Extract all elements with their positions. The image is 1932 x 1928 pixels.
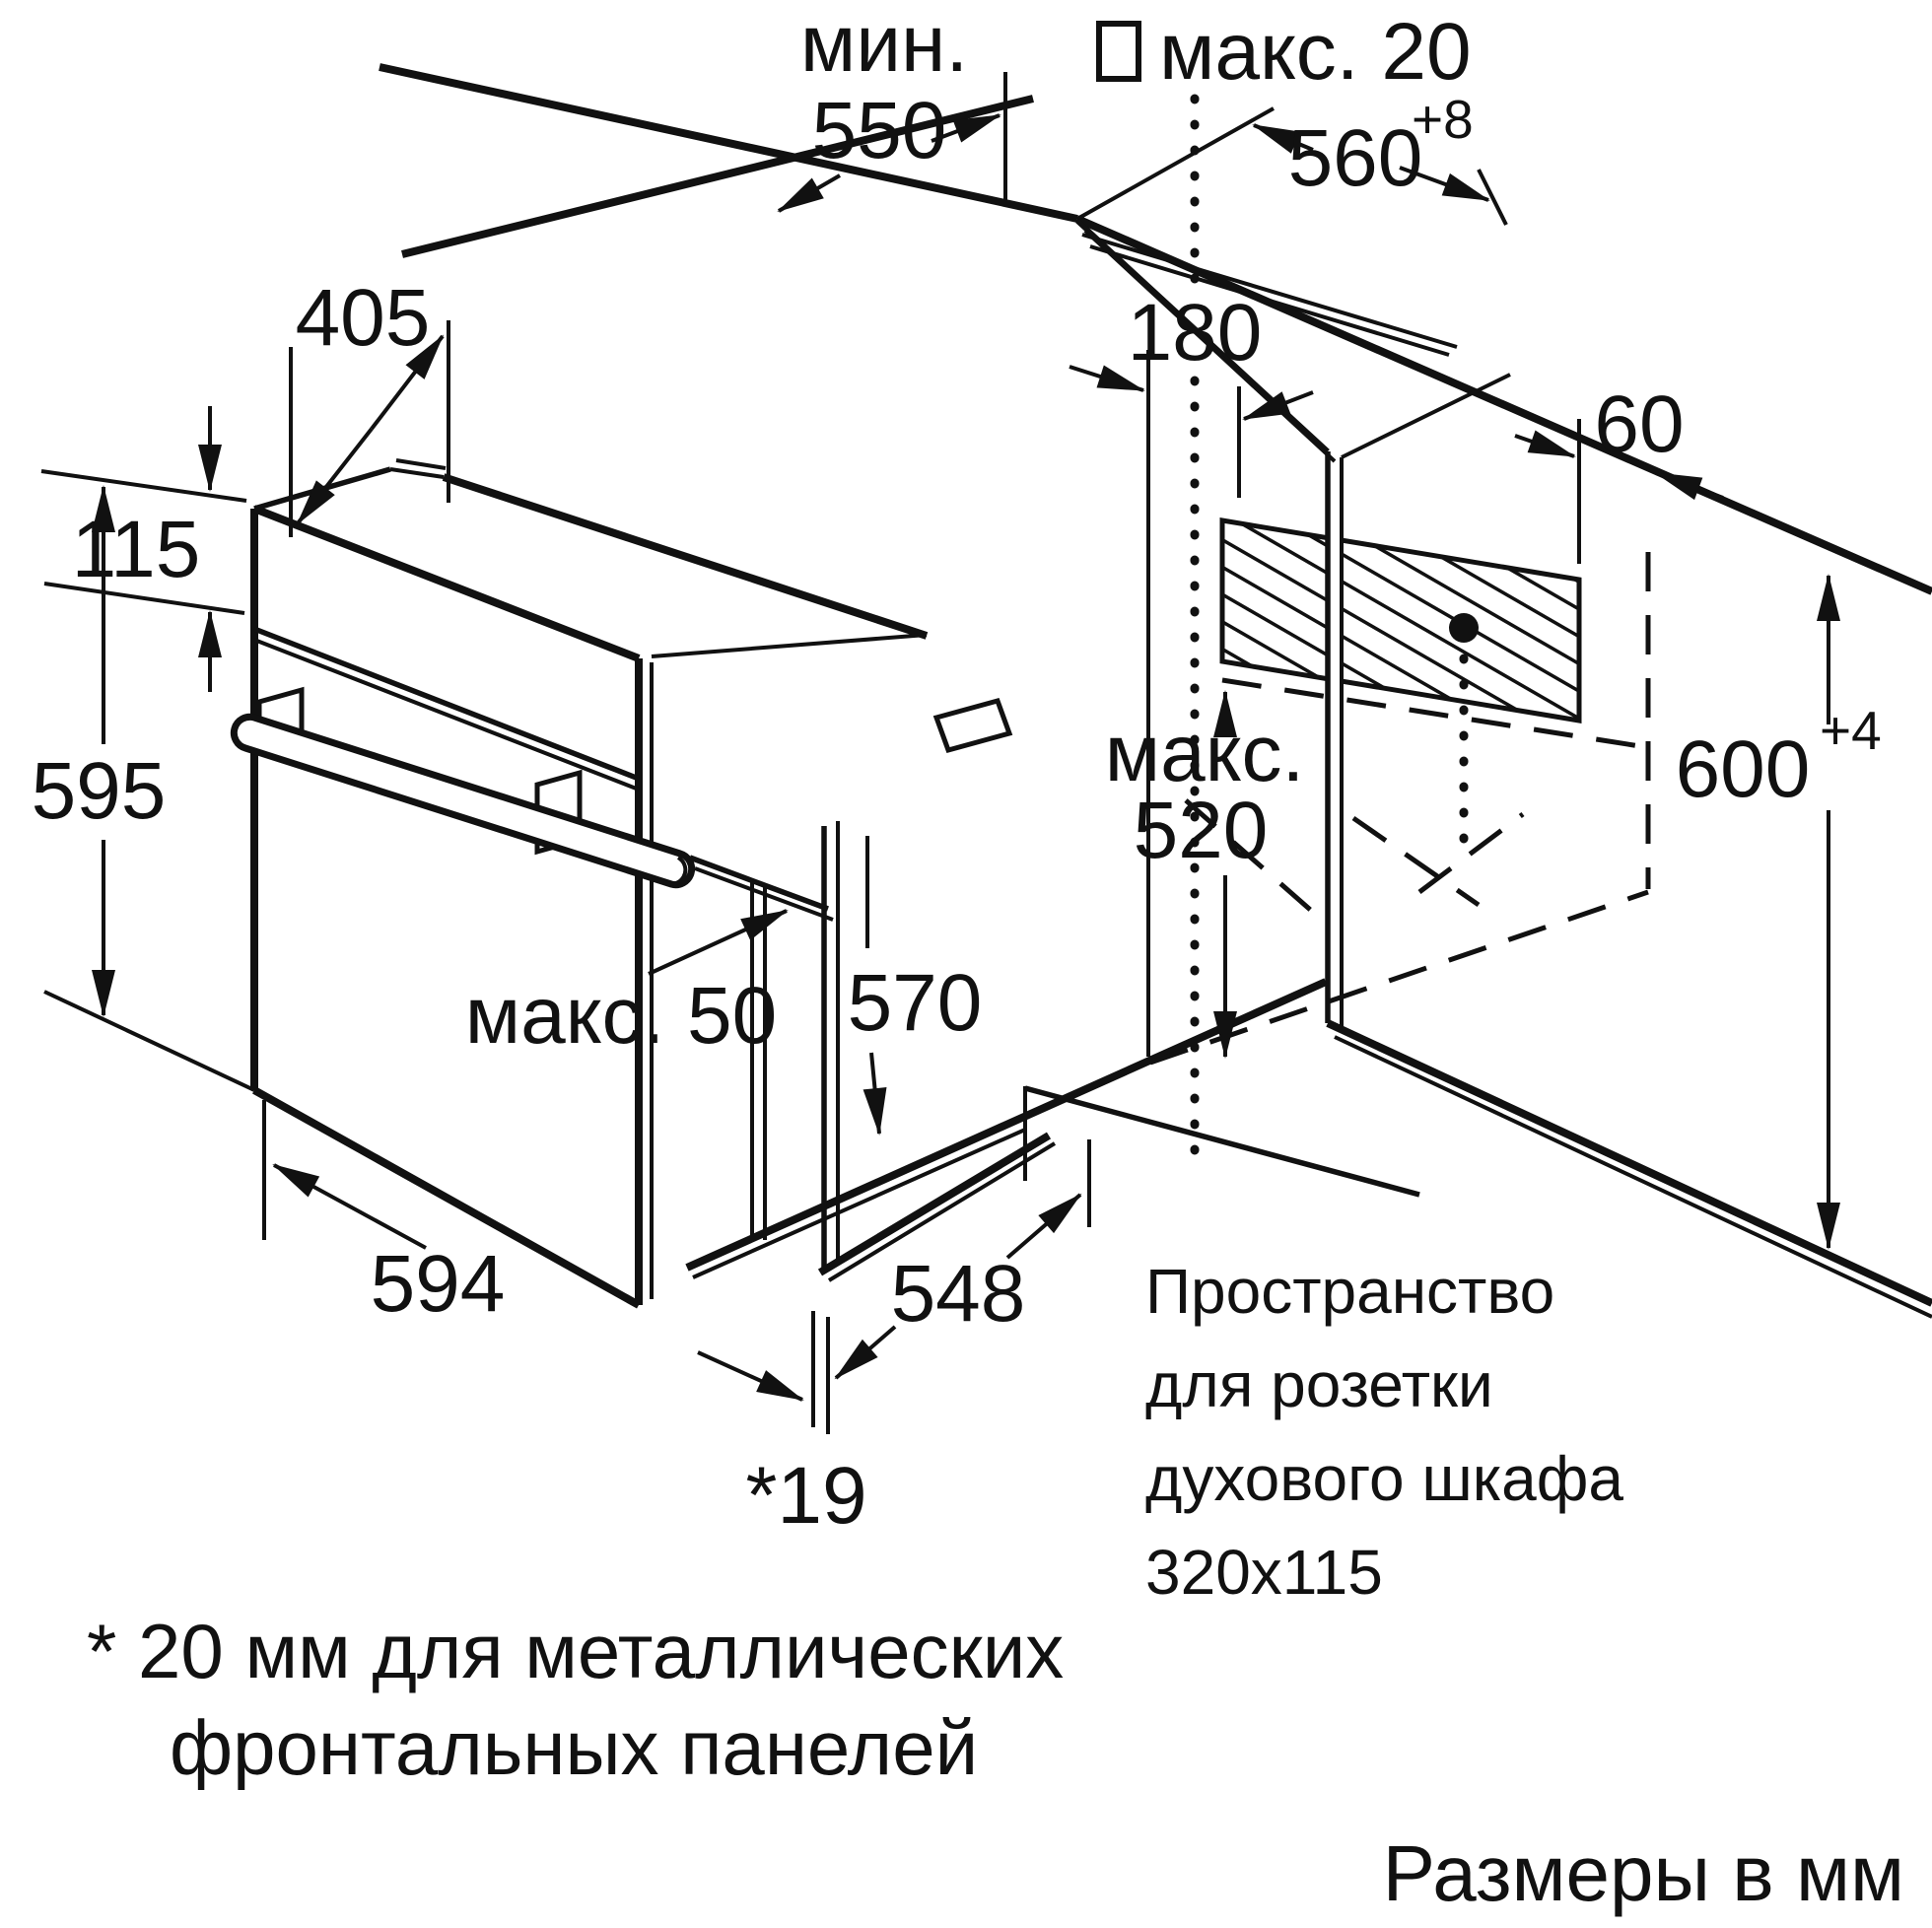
dim-180-label: 180	[1128, 288, 1263, 378]
dim-60-label: 60	[1594, 379, 1684, 469]
dim-600: 600 +4	[1676, 576, 1882, 1248]
dim-560-value: 560	[1288, 113, 1423, 203]
dim-19: *19	[698, 1311, 867, 1541]
vent-slot	[936, 701, 1009, 750]
oven-top	[254, 460, 927, 656]
socket-note-line4: 320x115	[1145, 1537, 1383, 1608]
dim-max-50: макс. 50	[465, 911, 787, 1061]
units-note: Размеры в мм	[1383, 1829, 1904, 1917]
dim-600-value: 600	[1676, 724, 1811, 814]
dim-548-label: 548	[891, 1249, 1026, 1339]
socket-note-line2: для розетки	[1145, 1349, 1493, 1420]
dim-115-label: 115	[72, 505, 201, 594]
dim-548: 548	[836, 1139, 1089, 1378]
socket-area-hatch	[1222, 520, 1579, 721]
footnote-line1: * 20 мм для металлических	[87, 1608, 1064, 1694]
socket-note-line3: духового шкафа	[1145, 1443, 1623, 1514]
dim-min-550-prefix: мин.	[800, 0, 968, 89]
dim-560: 560 +8	[1254, 89, 1506, 225]
socket-dot	[1449, 613, 1479, 643]
dim-570: 570	[848, 836, 983, 1134]
oven	[234, 460, 1055, 1305]
dim-60: 60	[1515, 379, 1723, 564]
dim-560-tolerance: +8	[1412, 89, 1474, 150]
footnote-line2: фронтальных панелей	[170, 1704, 978, 1791]
installation-diagram-page: мин. 550 макс. 20 560 +8 405 115 595	[0, 0, 1932, 1928]
socket-note-line1: Пространство	[1145, 1256, 1554, 1327]
socket-note: Пространство для розетки духового шкафа …	[1145, 1256, 1623, 1608]
footnote: * 20 мм для металлических фронтальных па…	[87, 1608, 1064, 1791]
dim-595-label: 595	[32, 746, 167, 836]
dim-max-520-line2: 520	[1134, 786, 1269, 875]
oven-installation-diagram: мин. 550 макс. 20 560 +8 405 115 595	[0, 0, 1932, 1928]
dim-max-20-label: макс. 20	[1159, 7, 1472, 97]
square-symbol	[1099, 24, 1138, 79]
dim-115: 115	[41, 406, 246, 692]
dim-min-550-value: 550	[812, 86, 947, 175]
dim-594-label: 594	[371, 1239, 506, 1329]
dim-19-label: *19	[745, 1451, 866, 1541]
dim-max-50-label: макс. 50	[465, 971, 778, 1061]
dim-405-label: 405	[296, 273, 431, 363]
dim-570-label: 570	[848, 958, 983, 1048]
dim-405: 405	[291, 273, 448, 537]
dim-600-tolerance: +4	[1820, 700, 1882, 761]
